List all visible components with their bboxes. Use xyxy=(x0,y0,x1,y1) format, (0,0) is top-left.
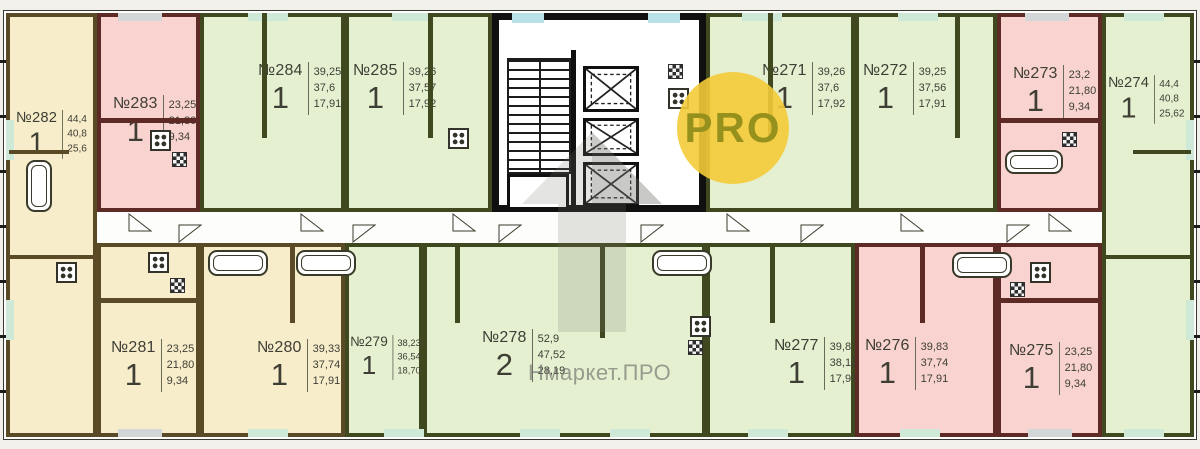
area-value: 39,25 xyxy=(919,65,947,80)
area-value: 17,92 xyxy=(818,97,846,112)
pro-logo-badge: PRO xyxy=(677,72,789,184)
house-icon xyxy=(522,132,662,332)
area-value: 17,91 xyxy=(921,372,949,387)
room-count: 1 xyxy=(788,357,805,390)
facade-tick xyxy=(1194,335,1200,338)
apartment-283[interactable]: №2831 23,2521,809,34 xyxy=(97,13,200,212)
apartment-number: №277 xyxy=(774,337,819,355)
area-value: 9,34 xyxy=(1065,377,1093,392)
facade-tick xyxy=(1194,225,1200,228)
area-value: 38,23 xyxy=(397,338,420,351)
partition-wall xyxy=(1133,150,1191,154)
partition-wall xyxy=(1105,255,1191,259)
partition-wall xyxy=(9,255,94,259)
area-value: 39,33 xyxy=(313,342,341,357)
partition-wall xyxy=(455,243,460,323)
apartment-number: №275 xyxy=(1009,342,1054,360)
window-sill xyxy=(748,429,788,437)
area-value: 23,25 xyxy=(169,98,197,113)
apartment-number: №278 xyxy=(482,329,527,347)
apartment-number: №272 xyxy=(863,62,908,80)
area-value: 52,9 xyxy=(538,332,566,347)
window-sill xyxy=(1186,120,1194,160)
stove-icon xyxy=(448,128,469,149)
facade-tick xyxy=(0,60,6,63)
elevator-icon xyxy=(583,66,639,112)
partition-wall xyxy=(1000,118,1099,123)
window-sill xyxy=(1124,429,1164,437)
area-value: 21,80 xyxy=(167,358,195,373)
facade-tick xyxy=(1194,170,1200,173)
area-value: 17,91 xyxy=(313,374,341,389)
stove-icon xyxy=(690,316,711,337)
area-value: 17,91 xyxy=(919,97,947,112)
window-sill xyxy=(1028,429,1072,437)
bathtub-icon xyxy=(952,252,1012,278)
apartment-number: №273 xyxy=(1013,65,1058,83)
room-count: 1 xyxy=(1027,85,1044,118)
area-value: 17,91 xyxy=(314,97,342,112)
window-sill xyxy=(742,13,782,21)
apartment-277[interactable]: №2771 39,838,1217,97 xyxy=(706,243,855,437)
area-value: 39,8 xyxy=(830,340,858,355)
facade-tick xyxy=(0,225,6,228)
window-sill xyxy=(6,300,14,340)
apartment-label: №2741 44,440,825,62 xyxy=(1108,75,1185,123)
facade-tick xyxy=(0,170,6,173)
vent-shaft-icon xyxy=(1010,282,1025,297)
area-value: 25,6 xyxy=(67,142,87,156)
apartment-number: №282 xyxy=(16,110,57,127)
apartment-label: №2801 39,3337,7417,91 xyxy=(257,339,340,392)
partition-wall xyxy=(262,13,267,138)
partition-wall xyxy=(1000,298,1099,303)
vent-shaft-icon xyxy=(688,340,703,355)
window-sill xyxy=(1025,13,1069,21)
door-swing-icon xyxy=(800,224,824,243)
apartment-number: №280 xyxy=(257,339,302,357)
facade-tick xyxy=(0,390,6,393)
door-swing-icon xyxy=(900,213,924,232)
room-count: 2 xyxy=(496,349,513,382)
bathtub-icon xyxy=(26,160,52,212)
apartment-label: №2751 23,2521,809,34 xyxy=(1009,342,1092,395)
area-value: 21,80 xyxy=(1065,361,1093,376)
apartment-272[interactable]: №2721 39,2537,5617,91 xyxy=(855,13,997,212)
room-count: 1 xyxy=(879,357,896,390)
apartment-number: №283 xyxy=(113,95,158,113)
window-sill xyxy=(118,13,162,21)
apartment-282[interactable]: №2821 44,440,825,6 xyxy=(6,13,97,437)
apartment-label: №2851 39,2637,5717,92 xyxy=(353,62,436,115)
door-swing-icon xyxy=(300,213,324,232)
area-value: 44,4 xyxy=(1159,78,1184,92)
facade-tick xyxy=(0,115,6,118)
window-sill xyxy=(118,429,162,437)
vent-shaft-icon xyxy=(1062,132,1077,147)
partition-wall xyxy=(9,150,69,154)
partition-wall xyxy=(428,13,433,138)
area-value: 40,8 xyxy=(1159,92,1184,106)
area-value: 38,12 xyxy=(830,356,858,371)
door-swing-icon xyxy=(726,213,750,232)
apartment-number: №285 xyxy=(353,62,398,80)
facade-tick xyxy=(0,280,6,283)
door-swing-icon xyxy=(128,213,152,232)
facade-tick xyxy=(1194,115,1200,118)
stove-icon xyxy=(148,252,169,273)
window-sill xyxy=(648,13,680,23)
area-value: 37,6 xyxy=(818,81,846,96)
vent-shaft-icon xyxy=(668,64,683,79)
facade-tick xyxy=(1194,390,1200,393)
floor-plan: №2821 44,440,825,6 №2831 23,2521,809,34 … xyxy=(0,0,1200,449)
room-count: 1 xyxy=(125,359,142,392)
area-value: 23,25 xyxy=(1065,345,1093,360)
room-count: 1 xyxy=(877,82,894,115)
apartment-number: №276 xyxy=(865,337,910,355)
apartment-label: №2791 38,2336,5418,70 xyxy=(350,335,421,380)
bathtub-icon xyxy=(296,250,356,276)
bathtub-icon xyxy=(1005,150,1063,174)
window-sill xyxy=(248,13,288,21)
area-value: 37,74 xyxy=(313,358,341,373)
partition-wall xyxy=(955,13,960,138)
room-count: 1 xyxy=(1121,93,1137,123)
door-swing-icon xyxy=(498,224,522,243)
apartment-label: №2731 23,221,809,34 xyxy=(1013,65,1096,118)
stove-icon xyxy=(1030,262,1051,283)
window-sill xyxy=(1186,300,1194,340)
watermark-text: Нмаркет.ПРО xyxy=(528,360,671,386)
area-value: 21,80 xyxy=(1069,84,1097,99)
door-swing-icon xyxy=(452,213,476,232)
apartment-number: №279 xyxy=(350,335,388,350)
area-value: 9,34 xyxy=(167,374,195,389)
window-sill xyxy=(6,120,14,160)
facade-tick xyxy=(1194,280,1200,283)
apartment-285[interactable]: №2851 39,2637,5717,92 xyxy=(345,13,492,212)
partition-wall xyxy=(100,118,197,123)
facade-tick xyxy=(0,335,6,338)
area-value: 39,83 xyxy=(921,340,949,355)
area-value: 23,2 xyxy=(1069,68,1097,83)
area-value: 37,6 xyxy=(314,81,342,96)
door-swing-icon xyxy=(352,224,376,243)
vent-shaft-icon xyxy=(172,152,187,167)
area-value: 23,25 xyxy=(167,342,195,357)
partition-wall xyxy=(100,298,197,303)
apartment-number: №274 xyxy=(1108,75,1149,92)
area-value: 25,62 xyxy=(1159,107,1184,121)
partition-wall xyxy=(770,243,775,323)
apartment-label: №2811 23,2521,809,34 xyxy=(111,339,194,392)
window-sill xyxy=(610,429,650,437)
room-count: 1 xyxy=(362,352,377,380)
room-count: 1 xyxy=(367,82,384,115)
partition-wall xyxy=(290,243,295,323)
area-value: 39,26 xyxy=(818,65,846,80)
window-sill xyxy=(898,13,938,21)
area-value: 17,97 xyxy=(830,372,858,387)
apartment-number: №281 xyxy=(111,339,156,357)
apartment-label: №2721 39,2537,5617,91 xyxy=(863,62,946,115)
apartment-284[interactable]: №2841 39,2537,617,91 xyxy=(200,13,345,212)
window-sill xyxy=(248,429,288,437)
area-value: 40,8 xyxy=(67,127,87,141)
bathtub-icon xyxy=(208,250,268,276)
facade-tick xyxy=(1194,60,1200,63)
area-value: 9,34 xyxy=(169,130,197,145)
partition-wall xyxy=(920,243,925,323)
door-swing-icon xyxy=(1006,224,1030,243)
window-sill xyxy=(900,429,940,437)
window-sill xyxy=(1124,13,1164,21)
area-value: 18,70 xyxy=(397,364,420,377)
door-swing-icon xyxy=(178,224,202,243)
area-value: 36,54 xyxy=(397,351,420,364)
window-sill xyxy=(520,429,560,437)
area-value: 44,4 xyxy=(67,113,87,127)
apartment-label: №2771 39,838,1217,97 xyxy=(774,337,857,390)
room-count: 1 xyxy=(271,359,288,392)
window-sill xyxy=(512,13,544,23)
area-value: 37,74 xyxy=(921,356,949,371)
apartment-label: №2841 39,2537,617,91 xyxy=(258,62,341,115)
stove-icon xyxy=(150,130,171,151)
area-value: 39,25 xyxy=(314,65,342,80)
vent-shaft-icon xyxy=(170,278,185,293)
window-sill xyxy=(384,429,424,437)
door-swing-icon xyxy=(1048,213,1072,232)
apartment-label: №2761 39,8337,7417,91 xyxy=(865,337,948,390)
area-value: 37,56 xyxy=(919,81,947,96)
window-sill xyxy=(392,13,432,21)
stove-icon xyxy=(56,262,77,283)
apartment-274[interactable]: №2741 44,440,825,62 xyxy=(1102,13,1194,437)
room-count: 1 xyxy=(272,82,289,115)
area-value: 9,34 xyxy=(1069,100,1097,115)
apartment-273[interactable]: №2731 23,221,809,34 xyxy=(997,13,1102,212)
apartment-279[interactable]: №2791 38,2336,5418,70 xyxy=(345,243,423,437)
room-count: 1 xyxy=(1023,362,1040,395)
